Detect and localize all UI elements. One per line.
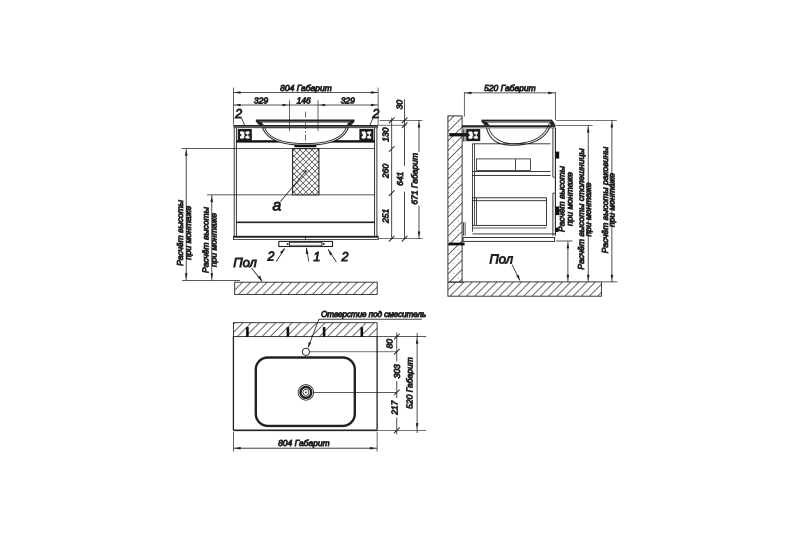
svg-text:520 Габарит: 520 Габарит xyxy=(484,83,536,93)
svg-text:при монтаже: при монтаже xyxy=(209,213,219,267)
svg-text:303: 303 xyxy=(392,364,402,378)
svg-text:671 Габарит: 671 Габарит xyxy=(410,153,420,205)
svg-text:30: 30 xyxy=(394,100,404,110)
svg-text:2: 2 xyxy=(234,107,242,121)
svg-text:80: 80 xyxy=(385,339,395,349)
svg-text:Пол: Пол xyxy=(489,251,513,266)
svg-text:2: 2 xyxy=(341,250,349,264)
svg-text:251: 251 xyxy=(381,209,391,224)
svg-text:329: 329 xyxy=(341,95,355,105)
svg-text:217: 217 xyxy=(389,400,399,415)
svg-text:130: 130 xyxy=(381,127,391,141)
svg-text:a: a xyxy=(272,198,281,215)
svg-text:329: 329 xyxy=(254,95,268,105)
svg-text:520 Габарит: 520 Габарит xyxy=(404,357,414,409)
svg-text:Пол: Пол xyxy=(233,255,257,270)
svg-text:при монтаже: при монтаже xyxy=(583,182,593,236)
svg-text:804 Габарит: 804 Габарит xyxy=(278,438,330,448)
svg-text:при монтаже: при монтаже xyxy=(564,172,574,226)
svg-text:260: 260 xyxy=(381,164,391,179)
svg-text:146: 146 xyxy=(297,95,311,105)
svg-text:Отверстие под смеситель: Отверстие под смеситель xyxy=(321,310,426,319)
svg-text:1: 1 xyxy=(313,250,320,264)
svg-text:641: 641 xyxy=(395,171,405,185)
svg-text:2: 2 xyxy=(267,250,275,264)
svg-text:804 Габарит: 804 Габарит xyxy=(280,83,332,93)
svg-text:при монтаже: при монтаже xyxy=(607,173,617,227)
svg-text:при монтаже: при монтаже xyxy=(183,206,193,260)
